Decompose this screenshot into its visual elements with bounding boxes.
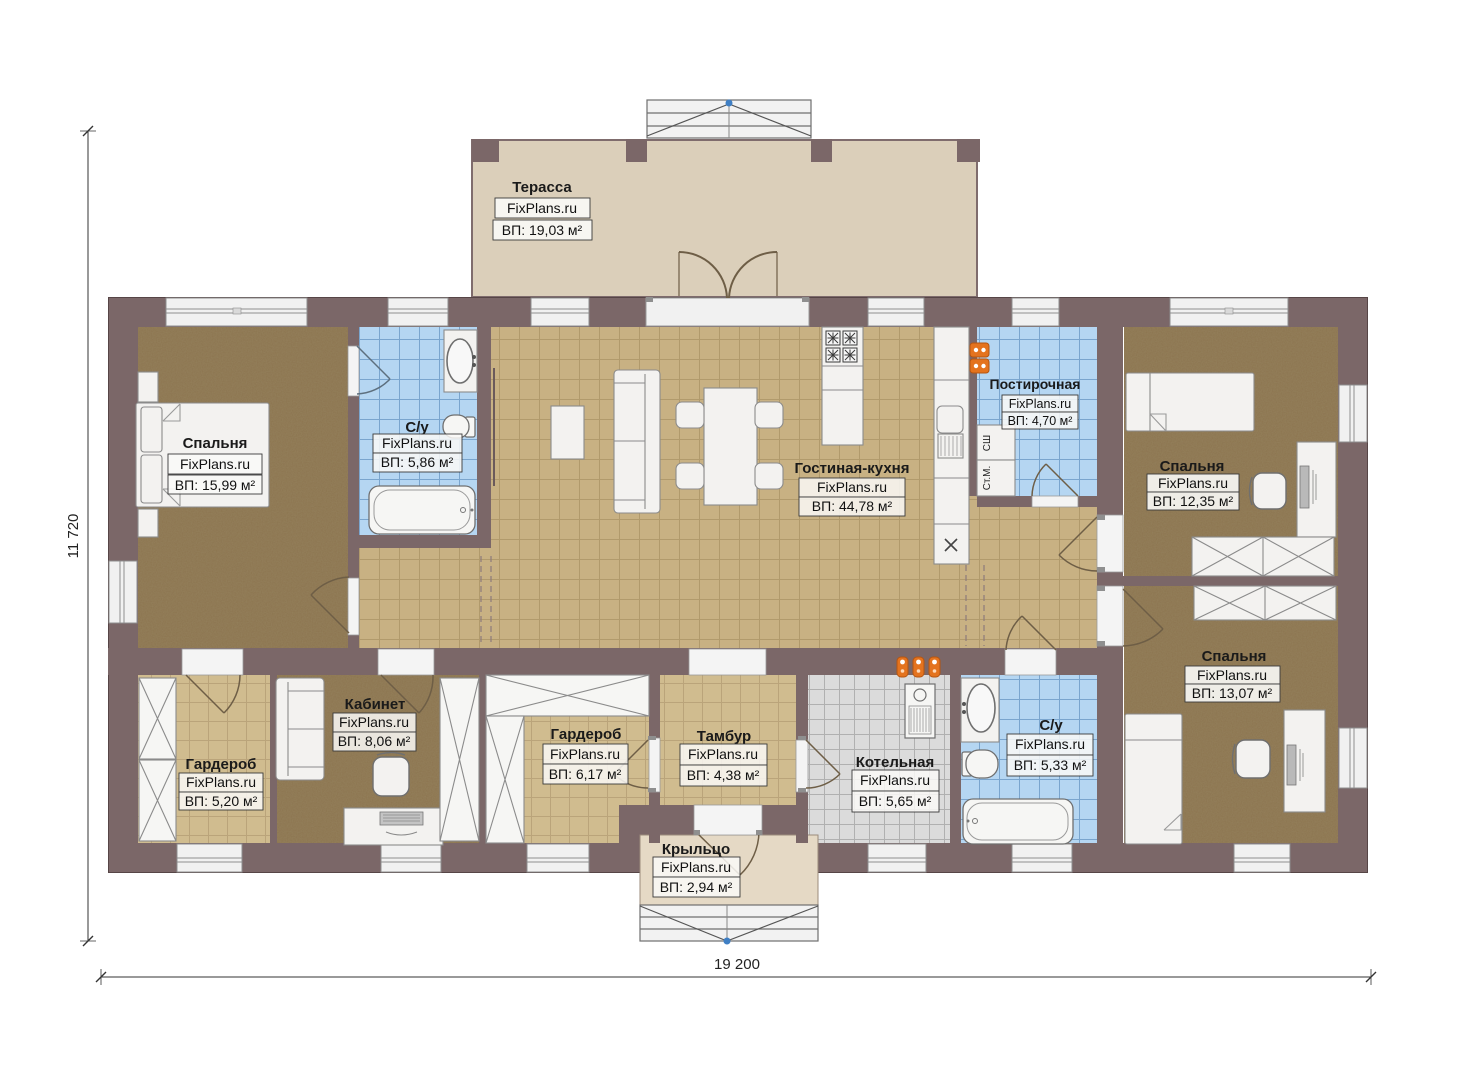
svg-text:ВП: 44,78 м²: ВП: 44,78 м²	[812, 498, 893, 514]
svg-text:FixPlans.ru: FixPlans.ru	[661, 859, 731, 875]
svg-text:FixPlans.ru: FixPlans.ru	[1197, 667, 1267, 683]
svg-text:ВП: 6,17 м²: ВП: 6,17 м²	[549, 766, 622, 782]
svg-text:FixPlans.ru: FixPlans.ru	[382, 435, 452, 451]
svg-text:С/у: С/у	[1039, 717, 1063, 734]
svg-text:FixPlans.ru: FixPlans.ru	[1009, 397, 1072, 411]
svg-text:Гардероб: Гардероб	[186, 756, 257, 773]
svg-text:Ст.М.: Ст.М.	[982, 466, 993, 491]
svg-text:ВП: 15,99 м²: ВП: 15,99 м²	[175, 477, 256, 493]
svg-text:ВП: 5,86 м²: ВП: 5,86 м²	[381, 454, 454, 470]
svg-text:ВП: 2,94 м²: ВП: 2,94 м²	[660, 879, 733, 895]
svg-text:FixPlans.ru: FixPlans.ru	[688, 746, 758, 762]
svg-text:Спальня: Спальня	[1202, 648, 1267, 665]
svg-text:ВП: 19,03 м²: ВП: 19,03 м²	[502, 222, 583, 238]
svg-text:ВП: 4,38 м²: ВП: 4,38 м²	[687, 767, 760, 783]
svg-text:Спальня: Спальня	[1160, 458, 1225, 475]
svg-text:FixPlans.ru: FixPlans.ru	[817, 479, 887, 495]
svg-text:Терасса: Терасса	[512, 179, 572, 196]
svg-text:Кабинет: Кабинет	[345, 696, 406, 713]
svg-text:Спальня: Спальня	[183, 435, 248, 452]
svg-text:ВП: 12,35 м²: ВП: 12,35 м²	[1153, 493, 1234, 509]
svg-text:С/у: С/у	[405, 419, 429, 436]
svg-text:FixPlans.ru: FixPlans.ru	[860, 772, 930, 788]
svg-text:ВП: 5,33 м²: ВП: 5,33 м²	[1014, 757, 1087, 773]
svg-text:Гардероб: Гардероб	[551, 726, 622, 743]
svg-text:FixPlans.ru: FixPlans.ru	[339, 714, 409, 730]
svg-text:ВП: 8,06 м²: ВП: 8,06 м²	[338, 733, 411, 749]
svg-text:11 720: 11 720	[65, 514, 82, 559]
svg-text:ВП: 5,20 м²: ВП: 5,20 м²	[185, 793, 258, 809]
svg-text:FixPlans.ru: FixPlans.ru	[1015, 736, 1085, 752]
svg-text:19 200: 19 200	[714, 956, 760, 973]
svg-text:Крыльцо: Крыльцо	[662, 841, 730, 858]
svg-text:FixPlans.ru: FixPlans.ru	[550, 746, 620, 762]
svg-text:Постирочная: Постирочная	[990, 376, 1081, 392]
svg-text:Котельная: Котельная	[856, 754, 935, 771]
svg-text:FixPlans.ru: FixPlans.ru	[180, 456, 250, 472]
svg-text:ВП: 4,70 м²: ВП: 4,70 м²	[1008, 414, 1073, 428]
svg-text:Гостиная-кухня: Гостиная-кухня	[795, 460, 910, 477]
svg-text:ВП: 13,07 м²: ВП: 13,07 м²	[1192, 685, 1273, 701]
svg-text:FixPlans.ru: FixPlans.ru	[1158, 475, 1228, 491]
svg-text:FixPlans.ru: FixPlans.ru	[186, 774, 256, 790]
svg-text:FixPlans.ru: FixPlans.ru	[507, 200, 577, 216]
svg-text:ВП: 5,65 м²: ВП: 5,65 м²	[859, 793, 932, 809]
svg-text:Тамбур: Тамбур	[697, 728, 751, 745]
svg-text:СШ: СШ	[982, 435, 993, 451]
